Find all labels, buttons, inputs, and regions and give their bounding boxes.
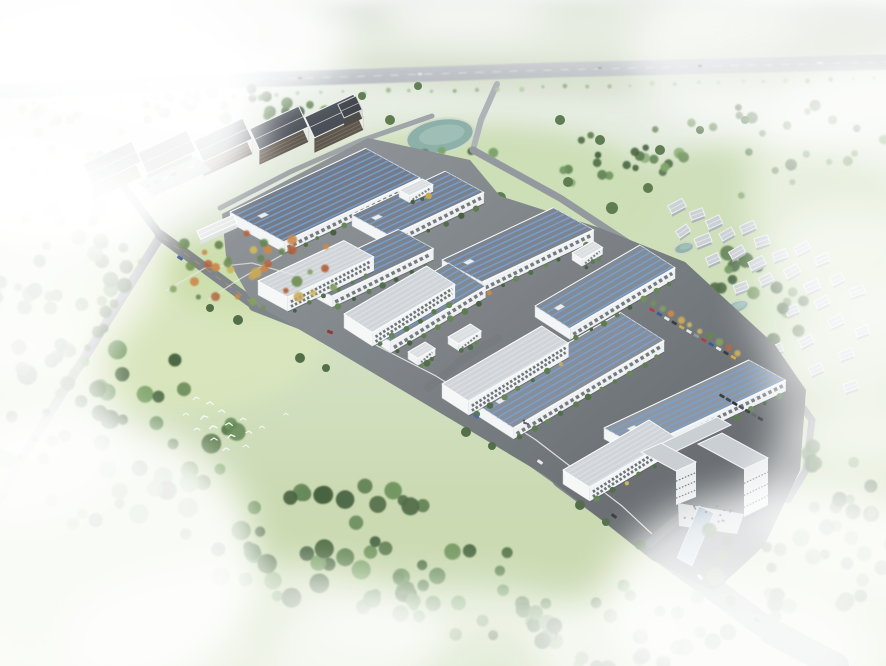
layer-fx bbox=[0, 0, 886, 666]
industrial-park-aerial-rendering bbox=[0, 0, 886, 666]
atmospheric-veil bbox=[0, 0, 886, 666]
aerial-render bbox=[0, 0, 886, 666]
